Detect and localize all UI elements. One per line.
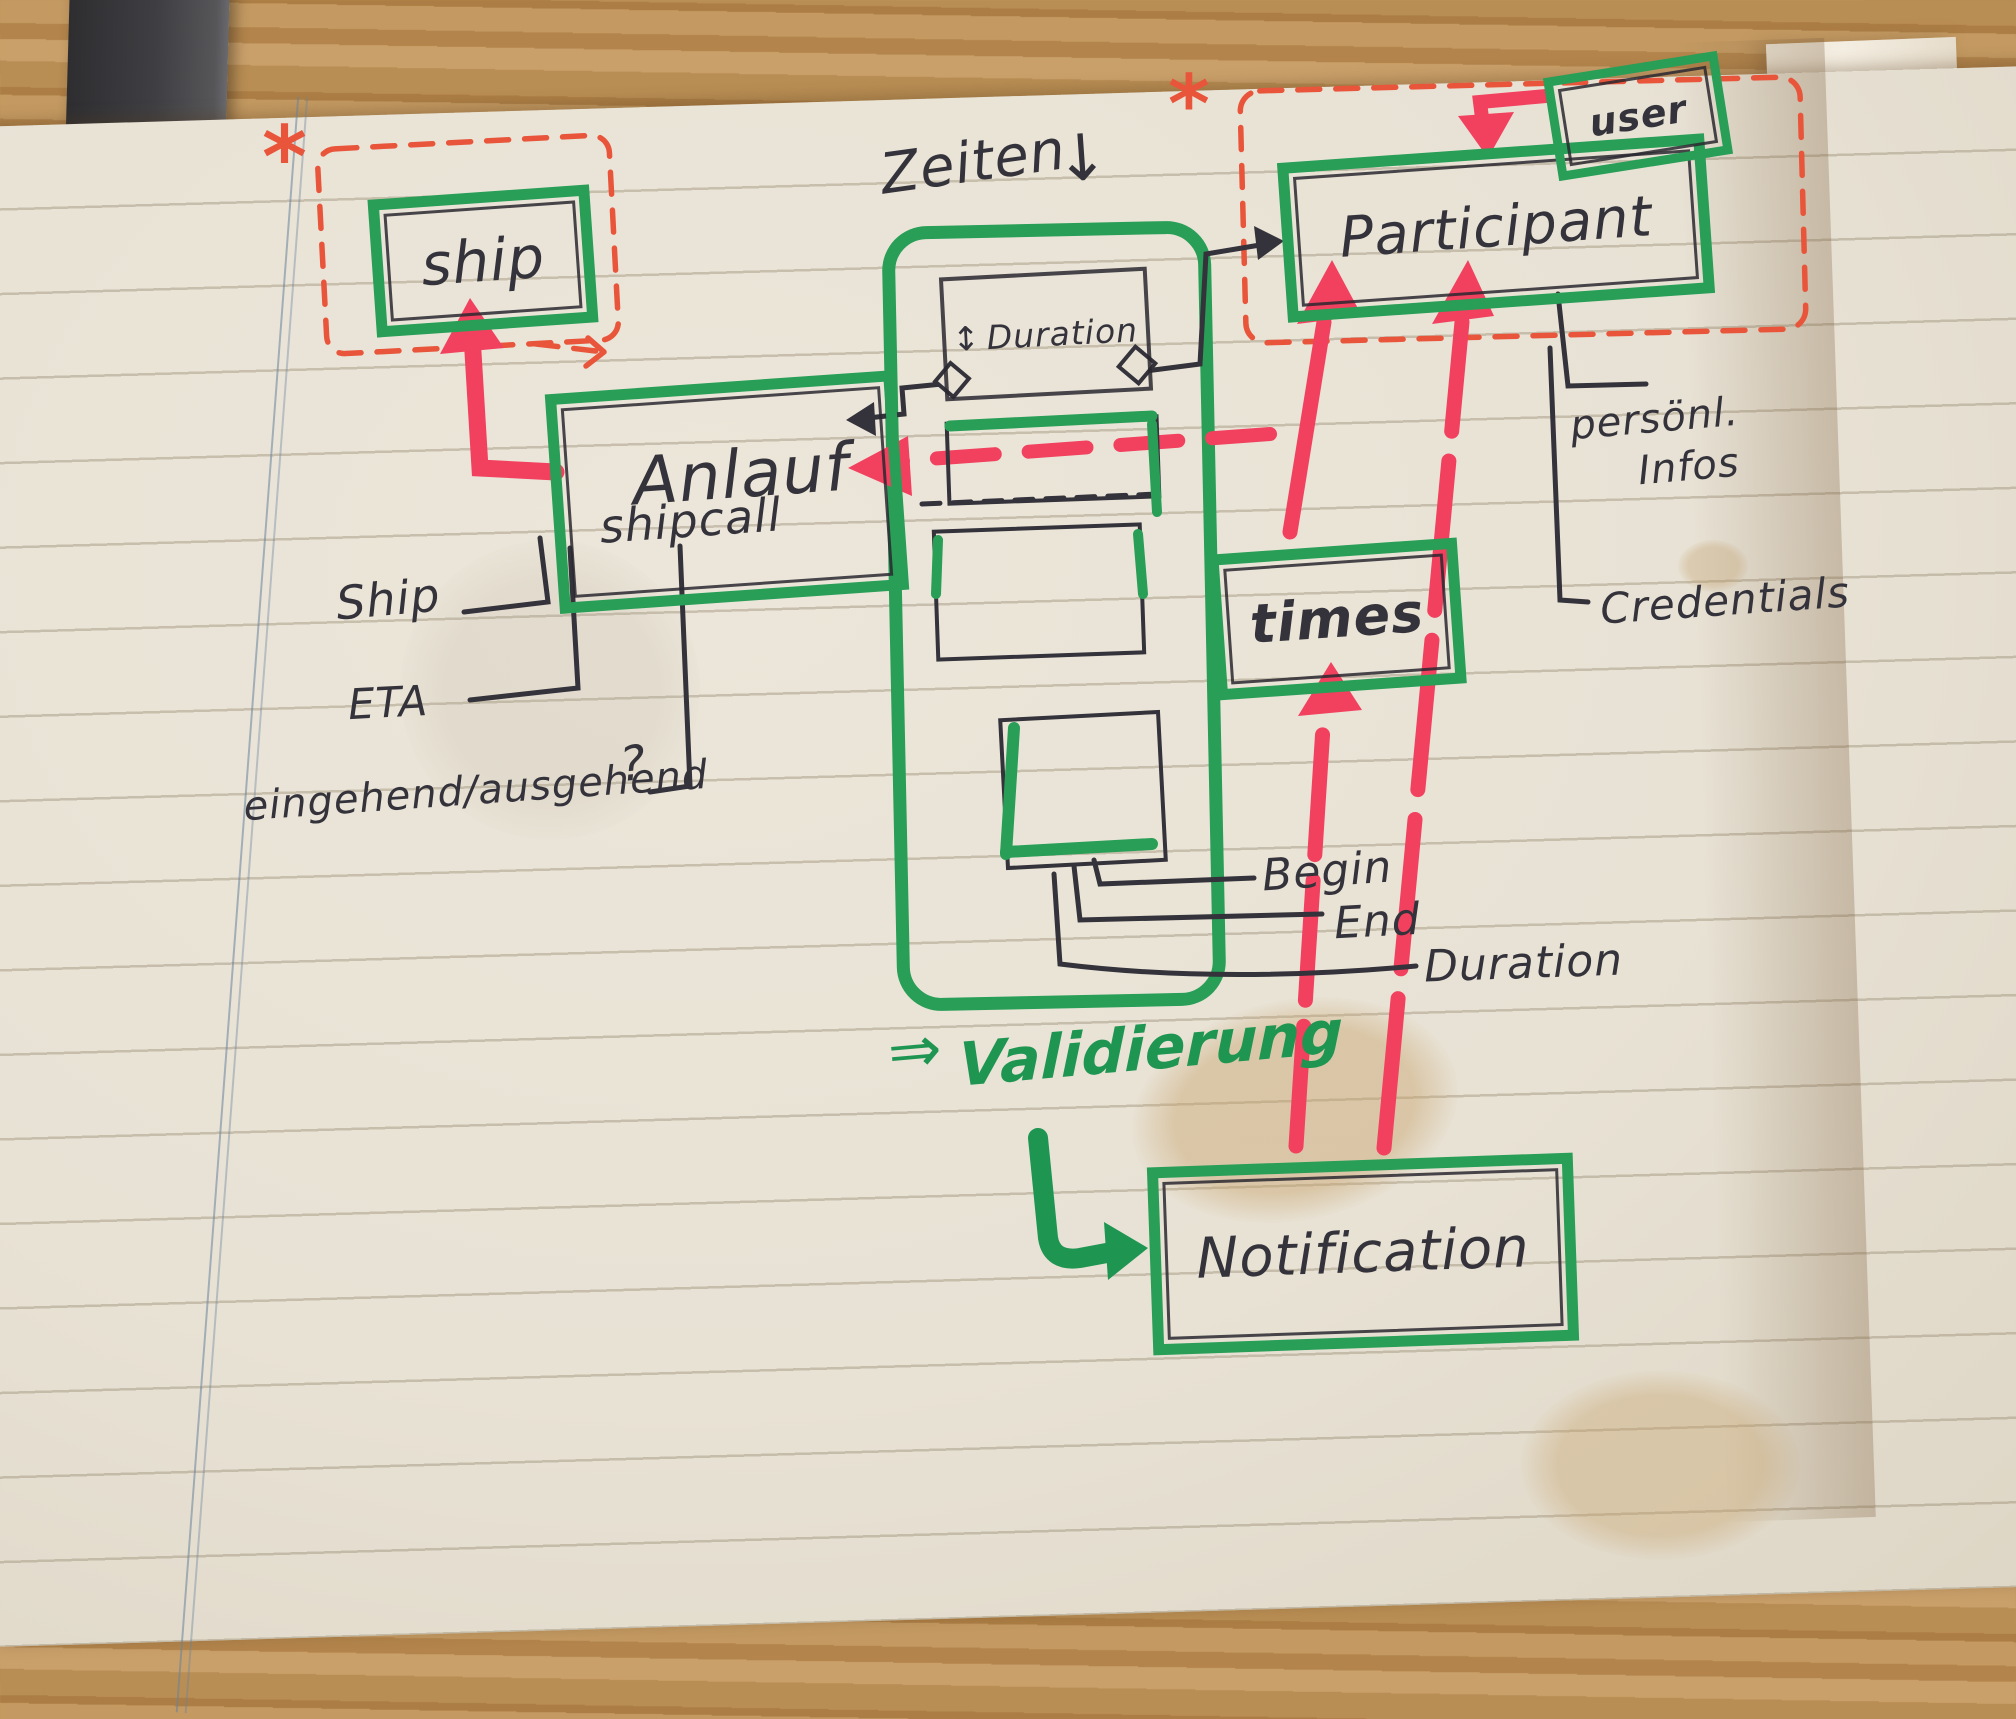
double-arrow-icon: ⇒ <box>885 1012 945 1090</box>
sketch-connectors <box>0 0 2016 1512</box>
entity-label-ship: ship <box>419 228 547 295</box>
asterisk-marker-left: * <box>262 108 307 208</box>
entity-box-times: times <box>1207 537 1467 700</box>
resize-vertical-icon: ↕ <box>951 321 981 355</box>
entity-label-participant: Participant <box>1338 189 1654 267</box>
arrow-anlauf-to-ship <box>472 336 556 472</box>
entity-label-user: user <box>1587 90 1690 143</box>
line-participant-to-personal <box>1558 294 1646 386</box>
attribute-end: End <box>1333 894 1422 949</box>
down-arrow-icon: ↓ <box>1052 120 1112 198</box>
attribute-duration: Duration <box>1423 935 1624 993</box>
line-ship-attr <box>464 538 548 612</box>
attribute-ship: Ship <box>334 568 443 631</box>
entity-label-duration: Duration <box>986 313 1139 354</box>
attribute-personal-infos-line2: Infos <box>1636 440 1741 495</box>
green-elbow-arrow <box>1038 1138 1148 1280</box>
time-entry-boxes <box>934 416 1166 868</box>
arrow-notification-to-participant <box>1384 322 1462 1148</box>
time-entry-box-2 <box>934 524 1144 659</box>
asterisk-marker-right: * <box>1168 58 1210 151</box>
entity-box-duration: ↕ Duration <box>939 267 1153 402</box>
question-mark: ? <box>617 735 649 793</box>
arrow-times-to-participant <box>1290 322 1324 532</box>
attribute-eta: ETA <box>347 676 430 729</box>
entity-label-notification: Notification <box>1195 1220 1530 1288</box>
entity-box-ship: ship <box>367 184 598 337</box>
entity-label-times: times <box>1248 586 1426 652</box>
notebook-photo: { "meta": { "description": "Hand-drawn e… <box>0 0 2016 1512</box>
entity-label-shipcall: shipcall <box>598 491 783 550</box>
attribute-begin: Begin <box>1260 842 1394 902</box>
entity-box-notification: Notification <box>1147 1153 1579 1356</box>
entity-box-anlauf: Anlauf shipcall <box>545 370 909 614</box>
arrow-notification-to-times <box>1296 712 1324 1146</box>
